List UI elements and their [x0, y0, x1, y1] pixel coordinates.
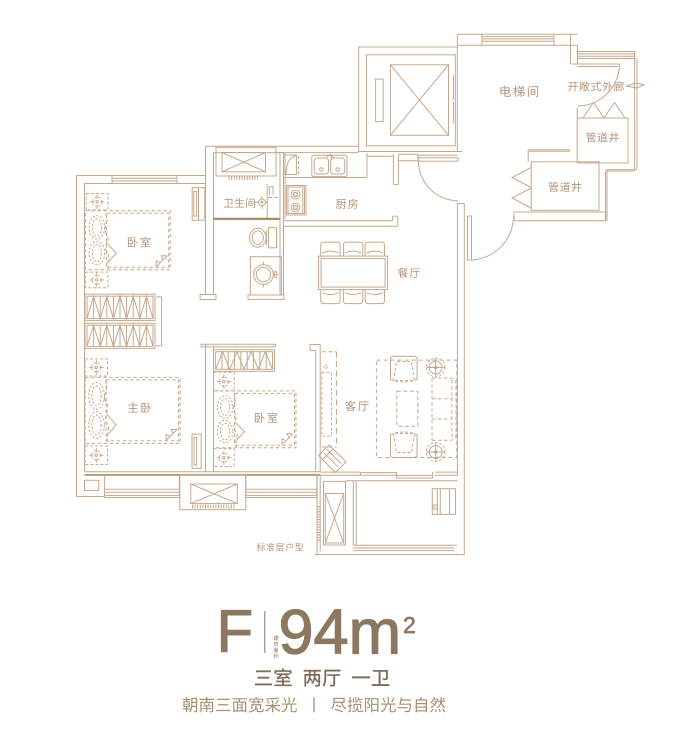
svg-text:94m: 94m — [279, 598, 402, 668]
svg-text:2: 2 — [403, 612, 416, 638]
svg-text:F: F — [217, 598, 254, 665]
